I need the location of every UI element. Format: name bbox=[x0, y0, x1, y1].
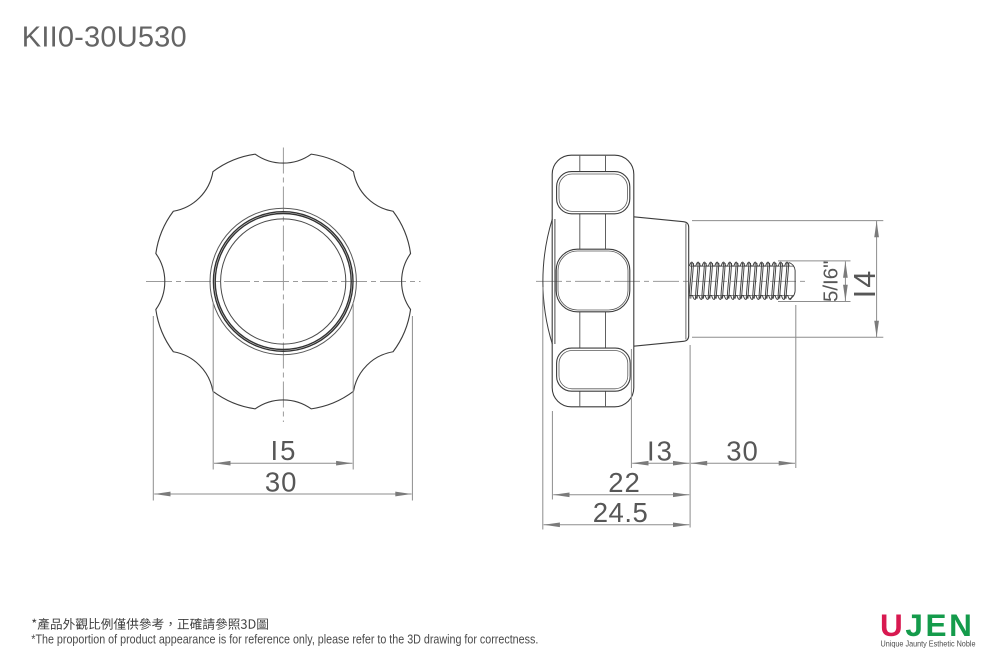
svg-text:I5: I5 bbox=[271, 435, 298, 466]
svg-text:I4: I4 bbox=[848, 269, 882, 298]
svg-text:5/I6": 5/I6" bbox=[820, 261, 843, 302]
svg-text:KII0-30U530: KII0-30U530 bbox=[22, 22, 187, 54]
svg-text:30: 30 bbox=[265, 466, 298, 497]
svg-text:24.5: 24.5 bbox=[593, 497, 649, 528]
svg-text:*The proportion of product app: *The proportion of product appearance is… bbox=[31, 632, 538, 647]
svg-text:UJEN: UJEN bbox=[880, 607, 974, 643]
svg-text:Unique Jaunty Esthetic Noble: Unique Jaunty Esthetic Noble bbox=[881, 639, 976, 649]
svg-text:22: 22 bbox=[608, 467, 641, 498]
svg-text:I3: I3 bbox=[647, 435, 674, 466]
svg-text:30: 30 bbox=[726, 435, 759, 466]
